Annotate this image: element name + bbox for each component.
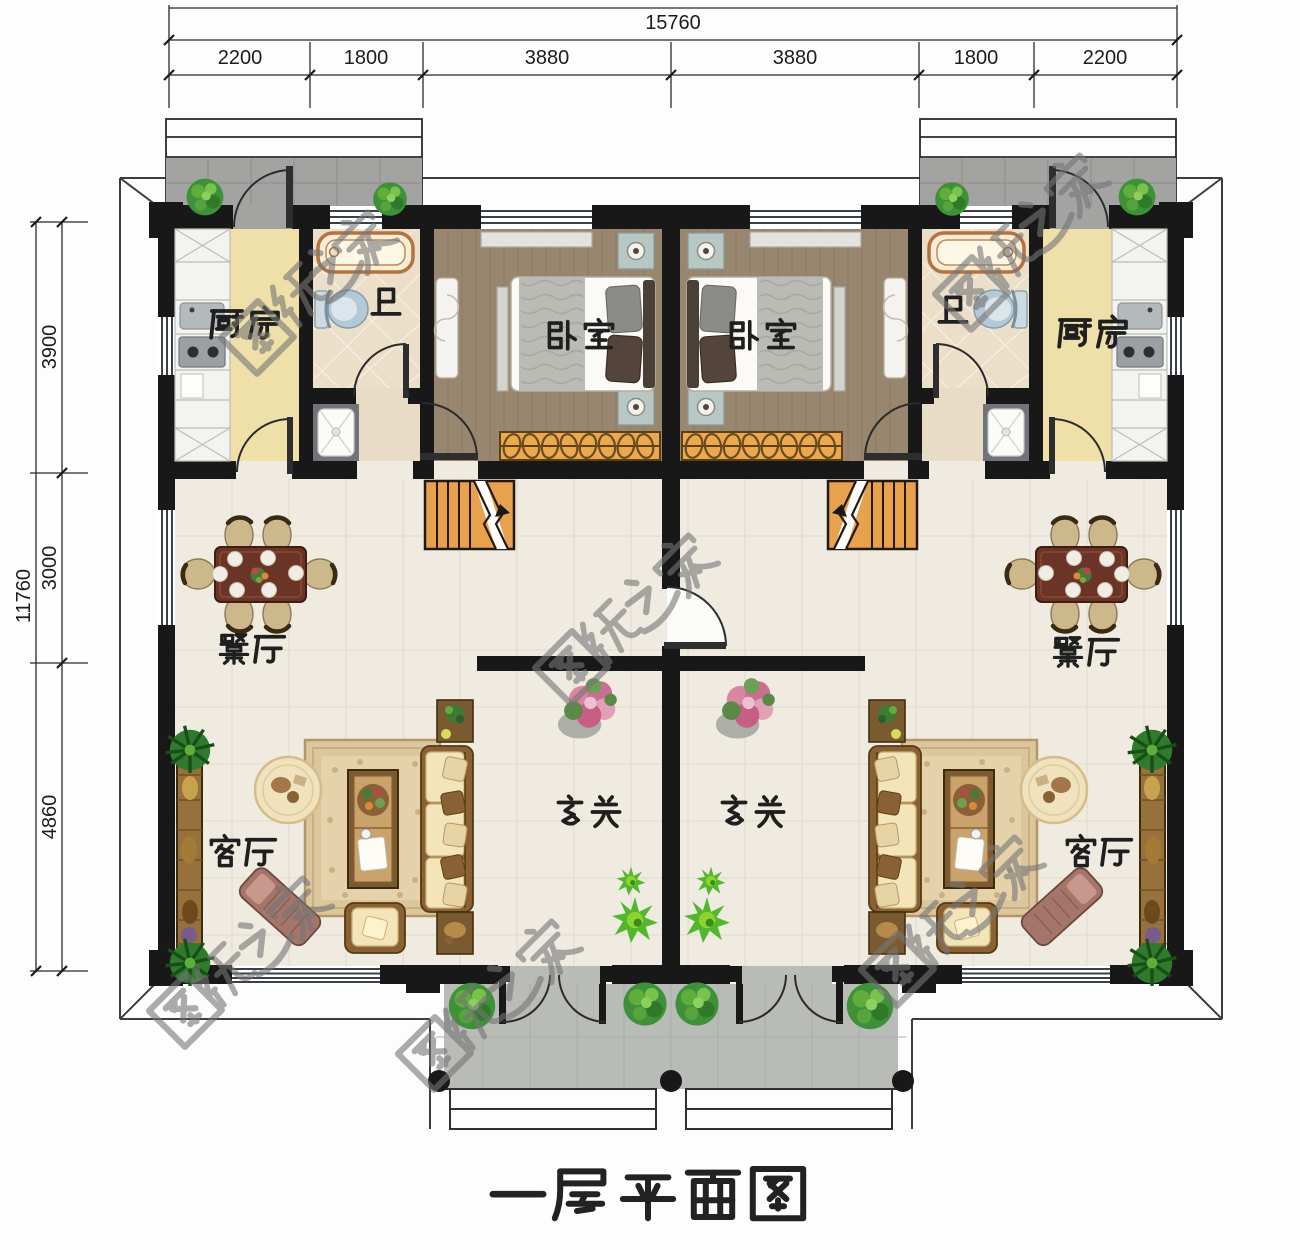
svg-text:2200: 2200 — [1083, 47, 1128, 69]
svg-text:4860: 4860 — [39, 795, 61, 840]
svg-text:11760: 11760 — [13, 569, 35, 623]
svg-text:2200: 2200 — [218, 47, 263, 69]
svg-text:1800: 1800 — [344, 47, 389, 69]
svg-text:3900: 3900 — [39, 325, 61, 370]
svg-text:3000: 3000 — [39, 546, 61, 591]
svg-text:15760: 15760 — [645, 12, 701, 34]
svg-text:1800: 1800 — [954, 47, 999, 69]
svg-text:3880: 3880 — [525, 47, 570, 69]
svg-text:3880: 3880 — [773, 47, 818, 69]
